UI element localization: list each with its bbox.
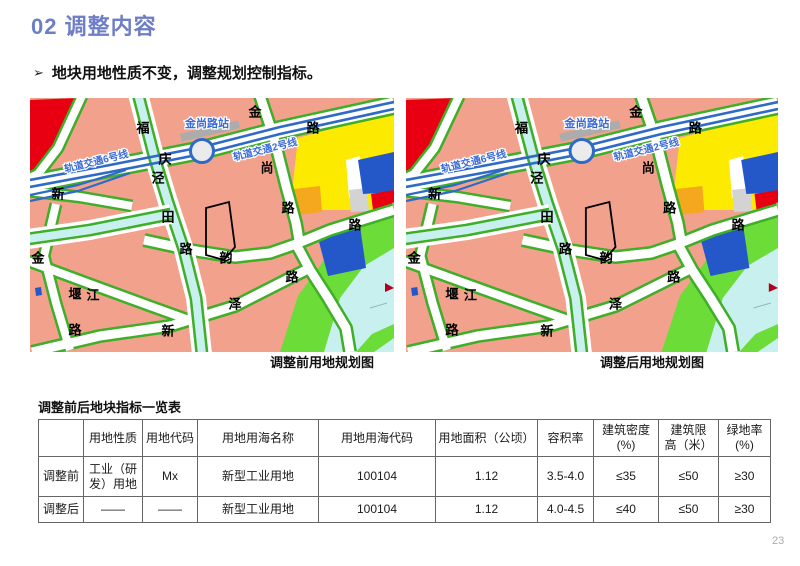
svg-text:韵: 韵 — [219, 251, 232, 266]
svg-text:田: 田 — [161, 210, 174, 225]
bullet-text: 地块用地性质不变，调整规划控制指标。 — [52, 62, 322, 83]
svg-text:路: 路 — [285, 270, 299, 285]
svg-text:韵: 韵 — [600, 250, 613, 266]
table-header-cell: 用地代码 — [143, 420, 198, 457]
table-cell: ≤40 — [594, 497, 659, 523]
table-cell: —— — [143, 497, 198, 523]
table-cell: 调整前 — [39, 457, 84, 497]
svg-text:金: 金 — [628, 104, 643, 120]
arrow-bullet-icon: ➢ — [33, 65, 44, 81]
table-header-cell: 容积率 — [538, 420, 594, 457]
svg-text:路: 路 — [281, 201, 295, 216]
table-header-cell: 用地用海代码 — [319, 420, 436, 457]
svg-text:江: 江 — [464, 287, 477, 303]
land-use-map-before: 福庆泾田路韵金路尚路路路金堰江路泽新新金尚路站轨道交通6号线轨道交通2号线 — [30, 98, 394, 352]
table-cell: 新型工业用地 — [198, 457, 319, 497]
slide-page: 02 调整内容 ➢ 地块用地性质不变，调整规划控制指标。 福庆泾田路韵金路尚路路… — [0, 0, 800, 566]
table-cell: 3.5-4.0 — [538, 457, 594, 497]
page-title: 02 调整内容 — [31, 9, 157, 41]
table-cell: ≥30 — [719, 457, 771, 497]
table-cell: 新型工业用地 — [198, 497, 319, 523]
svg-text:庆: 庆 — [157, 152, 171, 167]
table-header-cell: 用地用海名称 — [198, 420, 319, 457]
table-cell: ≤50 — [659, 497, 719, 523]
svg-text:路: 路 — [667, 269, 681, 285]
svg-text:堰: 堰 — [445, 287, 458, 302]
land-use-map-before-svg: 福庆泾田路韵金路尚路路路金堰江路泽新新金尚路站轨道交通6号线轨道交通2号线 — [30, 98, 394, 352]
table-cell: ≤35 — [594, 457, 659, 497]
svg-text:路: 路 — [689, 120, 703, 136]
table-cell: —— — [84, 497, 143, 523]
svg-text:泾: 泾 — [151, 171, 164, 186]
table-header-cell: 用地面积（公顷） — [436, 420, 538, 457]
table-header-cell — [39, 420, 84, 457]
caption-map-after: 调整后用地规划图 — [552, 352, 752, 371]
svg-text:新: 新 — [540, 323, 553, 339]
svg-text:路: 路 — [445, 322, 459, 338]
svg-text:路: 路 — [179, 242, 193, 257]
page-number: 23 — [772, 535, 784, 547]
table-row: 调整前工业（研 发）用地Mx新型工业用地1001041.123.5-4.0≤35… — [39, 457, 771, 497]
bullet-line: ➢ 地块用地性质不变，调整规划控制指标。 — [33, 62, 322, 83]
svg-text:路: 路 — [68, 323, 82, 338]
svg-text:新: 新 — [161, 324, 174, 339]
svg-text:路: 路 — [348, 218, 362, 233]
svg-text:路: 路 — [306, 121, 320, 136]
svg-text:新: 新 — [51, 187, 64, 202]
table-cell: ≤50 — [659, 457, 719, 497]
table-cell: Mx — [143, 457, 198, 497]
svg-text:金: 金 — [30, 251, 45, 266]
svg-text:金: 金 — [247, 105, 262, 120]
table-header-cell: 绿地率 (%) — [719, 420, 771, 457]
land-use-map-after: 福庆泾田路韵金路尚路路路金堰江路泽新新金尚路站轨道交通6号线轨道交通2号线 — [406, 98, 778, 352]
svg-text:路: 路 — [663, 200, 677, 216]
svg-text:福: 福 — [514, 120, 528, 136]
table-header-cell: 建筑限 高（米） — [659, 420, 719, 457]
svg-text:路: 路 — [559, 241, 573, 257]
svg-text:泽: 泽 — [609, 297, 623, 312]
table-title: 调整前后地块指标一览表 — [38, 397, 181, 416]
svg-text:泽: 泽 — [228, 297, 242, 312]
station-label: 金尚路站 — [563, 116, 609, 130]
land-use-map-after-svg: 福庆泾田路韵金路尚路路路金堰江路泽新新金尚路站轨道交通6号线轨道交通2号线 — [406, 98, 778, 352]
svg-text:江: 江 — [86, 288, 99, 303]
table-cell: ≥30 — [719, 497, 771, 523]
table-header-cell: 用地性质 — [84, 420, 143, 457]
svg-text:尚: 尚 — [260, 161, 273, 176]
table-cell: 4.0-4.5 — [538, 497, 594, 523]
table-cell: 调整后 — [39, 497, 84, 523]
svg-text:路: 路 — [732, 217, 746, 233]
table-cell: 工业（研 发）用地 — [84, 457, 143, 497]
table-header-cell: 建筑密度 (%) — [594, 420, 659, 457]
svg-text:泾: 泾 — [530, 170, 543, 186]
table-cell: 100104 — [319, 457, 436, 497]
table-cell: 1.12 — [436, 497, 538, 523]
table-cell: 100104 — [319, 497, 436, 523]
caption-map-before: 调整前用地规划图 — [222, 352, 422, 371]
svg-text:田: 田 — [540, 210, 553, 225]
svg-text:堰: 堰 — [68, 287, 81, 302]
svg-text:金: 金 — [407, 250, 422, 266]
svg-text:庆: 庆 — [537, 151, 551, 167]
table-header-row: 用地性质用地代码用地用海名称用地用海代码用地面积（公顷）容积率建筑密度 (%)建… — [39, 420, 771, 457]
table-cell: 1.12 — [436, 457, 538, 497]
indicator-table: 用地性质用地代码用地用海名称用地用海代码用地面积（公顷）容积率建筑密度 (%)建… — [38, 419, 771, 523]
svg-text:福: 福 — [135, 121, 149, 136]
svg-text:新: 新 — [428, 186, 441, 202]
station-label: 金尚路站 — [184, 116, 229, 130]
svg-text:尚: 尚 — [642, 160, 655, 176]
table-row: 调整后————新型工业用地1001041.124.0-4.5≤40≤50≥30 — [39, 497, 771, 523]
